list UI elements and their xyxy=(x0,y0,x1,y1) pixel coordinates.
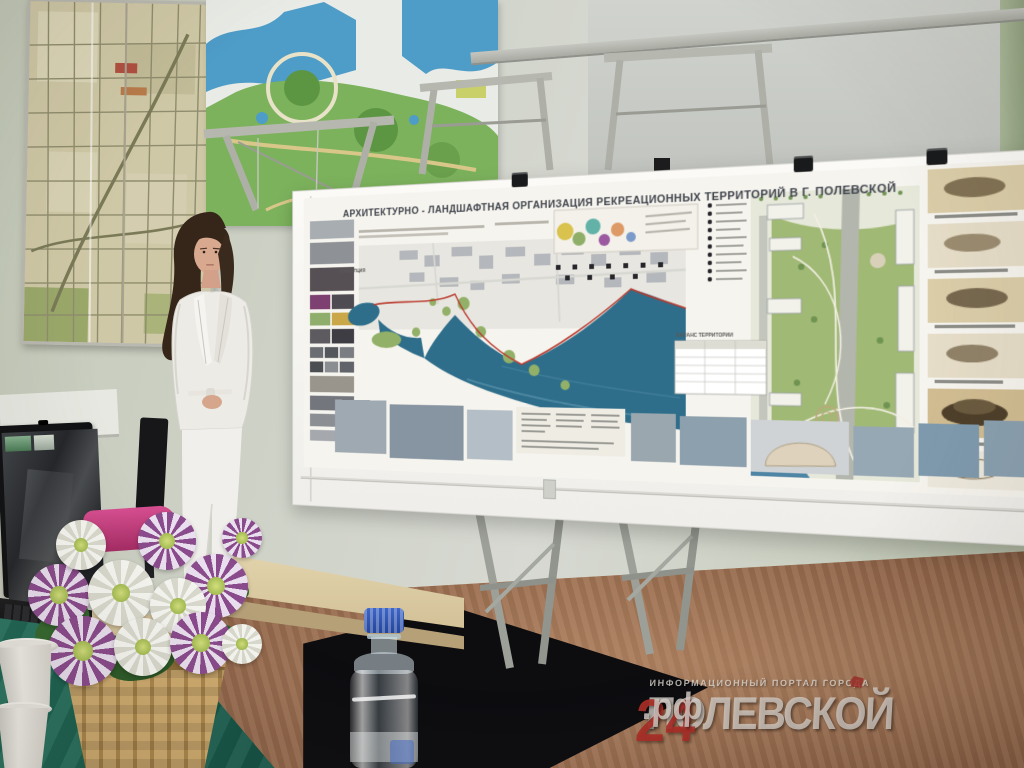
watermark-site-suffix: .рф xyxy=(641,686,704,729)
white-flower xyxy=(56,520,106,570)
white-blazer xyxy=(172,291,253,430)
bottle-label-logo xyxy=(390,740,414,764)
poster-concept-label: КОНЦЕПЦИЯ xyxy=(340,268,366,274)
neck xyxy=(201,270,221,288)
paper-cup xyxy=(0,708,52,768)
poster-zoning-schematic xyxy=(554,204,698,253)
white-flower xyxy=(114,618,172,676)
window-thumbnail xyxy=(34,435,55,451)
white-flower xyxy=(222,624,262,664)
bottle-cap xyxy=(364,608,404,633)
poster-balance-label: БАЛАНС ТЕРРИТОРИИ xyxy=(676,333,733,339)
binder-clip xyxy=(927,148,948,166)
presentation-board: АРХИТЕКТУРНО - ЛАНДШАФТНАЯ ОРГАНИЗАЦИЯ Р… xyxy=(292,148,1024,548)
white-flower xyxy=(88,560,154,626)
board-bracket xyxy=(543,479,556,499)
trestle-frame-right xyxy=(596,40,781,175)
hands xyxy=(202,395,222,409)
binder-clip xyxy=(794,155,813,172)
window-thumbnail xyxy=(5,436,32,452)
binder-clip xyxy=(512,172,528,187)
water-bottle xyxy=(336,600,430,768)
paper-cups xyxy=(0,636,64,768)
webcam xyxy=(38,420,48,425)
photo-scene: АРХИТЕКТУРНО - ЛАНДШАФТНАЯ ОРГАНИЗАЦИЯ Р… xyxy=(0,0,1024,768)
poster-balance-table xyxy=(675,341,767,395)
watermark: ИНФОРМАЦИОННЫЙ ПОРТАЛ ГОРОДА ПОЛЕВСКОЙ24… xyxy=(634,674,1022,752)
purple-flower xyxy=(138,512,196,570)
purple-flower xyxy=(222,518,262,558)
trestle-frame-middle xyxy=(414,62,559,177)
project-poster: АРХИТЕКТУРНО - ЛАНДШАФТНАЯ ОРГАНИЗАЦИЯ Р… xyxy=(304,159,1024,499)
